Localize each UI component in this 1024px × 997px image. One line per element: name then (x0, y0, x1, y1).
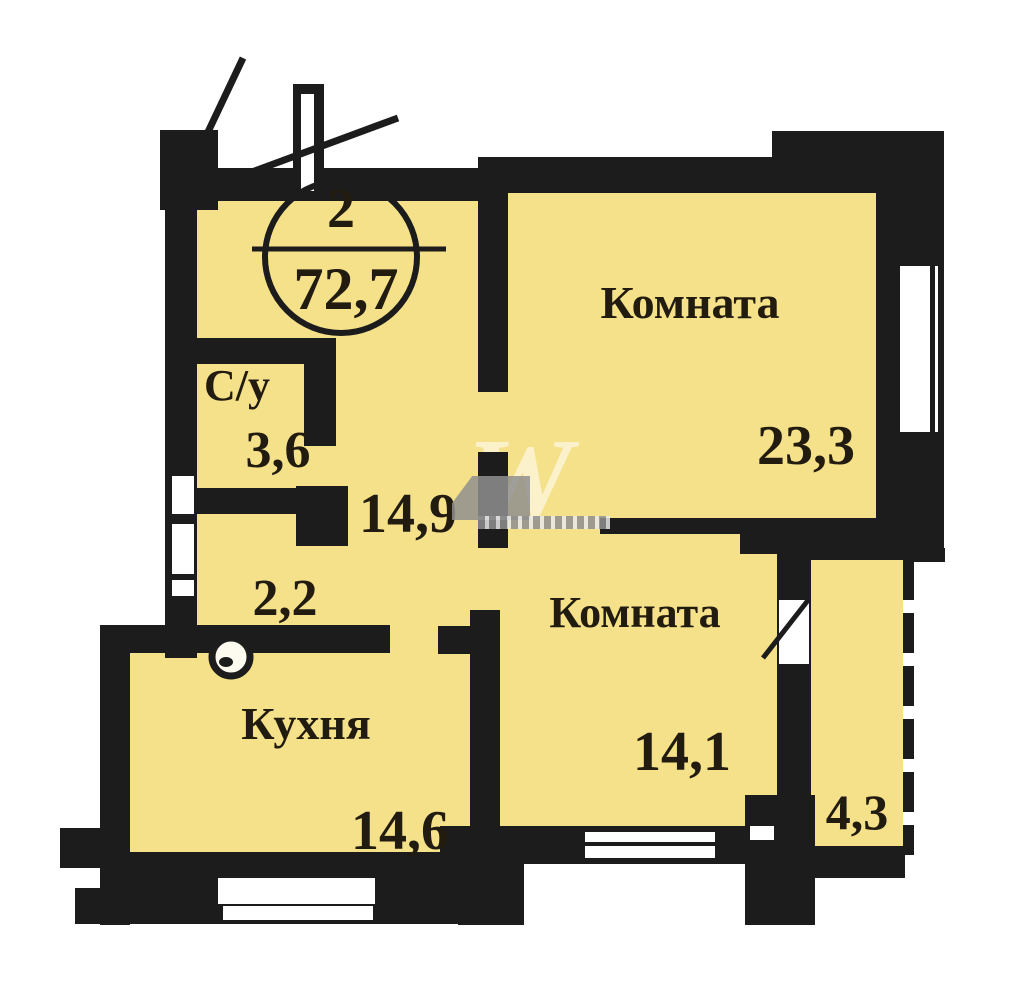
hallway-area: 14,9 (359, 486, 457, 542)
living-room-label: Комната (601, 280, 780, 326)
stove-symbol-dot (219, 657, 233, 667)
watermark-bar (478, 516, 610, 529)
living-room-area: 23,3 (757, 418, 855, 474)
kitchen-label: Кухня (241, 701, 371, 747)
bathroom-area: 3,6 (246, 425, 311, 477)
balcony-door-leaf (763, 599, 809, 658)
bathroom-label: С/у (204, 364, 270, 408)
corridor-area: 2,2 (253, 573, 318, 625)
balcony-area: 4,3 (826, 787, 889, 837)
bedroom-area: 14,1 (633, 724, 731, 780)
bedroom-label: Комната (549, 591, 720, 635)
kitchen-area: 14,6 (351, 803, 449, 859)
entry-door-swing-2 (203, 118, 398, 190)
floor-plan: W 2 72,7 (0, 0, 1024, 997)
entry-door-swing-1 (190, 58, 243, 170)
badge-total-area: 72,7 (294, 259, 399, 319)
stove-symbol (212, 638, 250, 676)
badge-rooms-count: 2 (327, 181, 355, 237)
